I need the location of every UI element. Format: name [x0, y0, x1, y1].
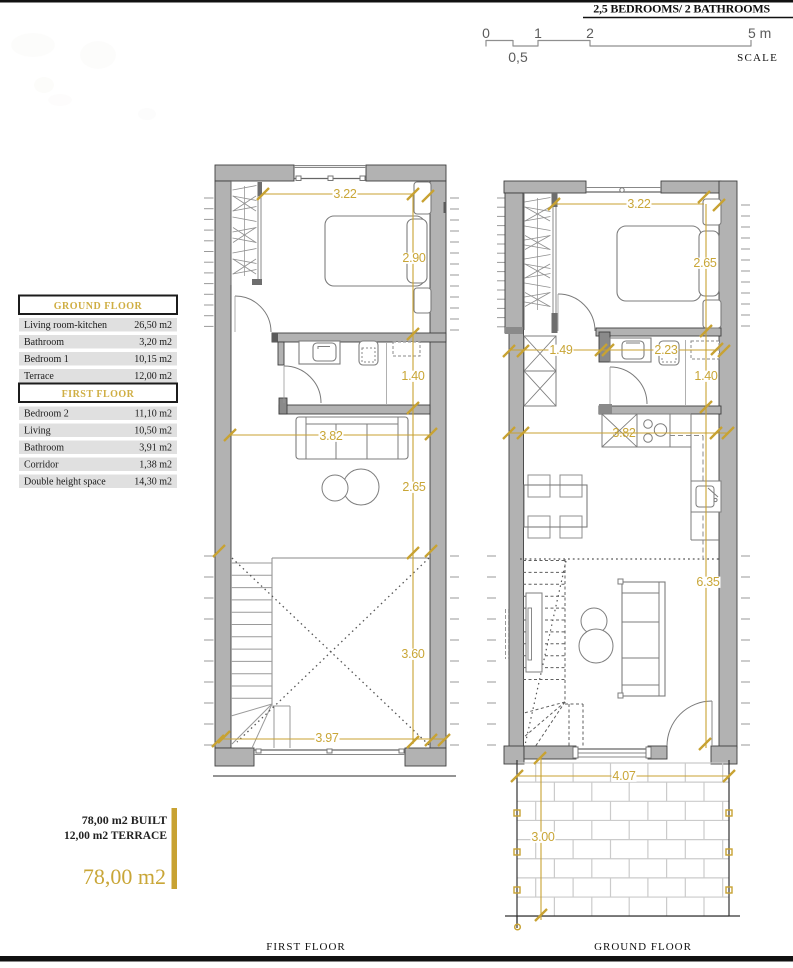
- svg-text:10,50 m2: 10,50 m2: [134, 426, 172, 437]
- svg-text:1.49: 1.49: [549, 343, 572, 357]
- svg-text:2.65: 2.65: [402, 480, 425, 494]
- svg-text:GROUND FLOOR: GROUND FLOOR: [54, 301, 143, 312]
- svg-text:1,38 m2: 1,38 m2: [139, 460, 172, 471]
- svg-text:2.65: 2.65: [693, 256, 716, 270]
- svg-text:3.60: 3.60: [401, 647, 424, 661]
- svg-text:0: 0: [482, 25, 490, 41]
- svg-text:Bathroom: Bathroom: [24, 443, 64, 454]
- svg-text:3.00: 3.00: [531, 830, 554, 844]
- svg-text:1.40: 1.40: [401, 369, 424, 383]
- svg-text:3.22: 3.22: [627, 197, 650, 211]
- svg-text:2.90: 2.90: [402, 251, 425, 265]
- svg-text:Bedroom 2: Bedroom 2: [24, 409, 69, 420]
- svg-text:GROUND FLOOR: GROUND FLOOR: [594, 941, 692, 953]
- svg-text:2: 2: [586, 25, 594, 41]
- svg-text:14,30 m2: 14,30 m2: [134, 477, 172, 488]
- svg-text:3,20 m2: 3,20 m2: [139, 337, 172, 348]
- svg-text:12,00 m2 TERRACE: 12,00 m2 TERRACE: [64, 830, 167, 842]
- svg-text:2,5 BEDROOMS/ 2 BATHROOMS: 2,5 BEDROOMS/ 2 BATHROOMS: [593, 2, 770, 16]
- svg-text:78,00 m2 BUILT: 78,00 m2 BUILT: [82, 813, 167, 827]
- svg-text:78,00 m2: 78,00 m2: [83, 864, 166, 889]
- svg-text:FIRST FLOOR: FIRST FLOOR: [62, 389, 135, 400]
- svg-text:FIRST FLOOR: FIRST FLOOR: [266, 941, 346, 953]
- svg-text:3.82: 3.82: [612, 426, 635, 440]
- svg-text:12,00 m2: 12,00 m2: [134, 371, 172, 382]
- svg-text:11,10 m2: 11,10 m2: [135, 409, 172, 420]
- svg-text:3.82: 3.82: [319, 429, 342, 443]
- svg-text:Bathroom: Bathroom: [24, 337, 64, 348]
- svg-text:1: 1: [534, 25, 542, 41]
- svg-text:2.23: 2.23: [654, 343, 677, 357]
- svg-text:5 m: 5 m: [748, 25, 771, 41]
- svg-text:3.22: 3.22: [333, 187, 356, 201]
- svg-text:Living: Living: [24, 426, 51, 437]
- svg-text:3.97: 3.97: [315, 731, 338, 745]
- svg-text:1.40: 1.40: [694, 369, 717, 383]
- svg-text:SCALE: SCALE: [737, 52, 778, 64]
- svg-text:Terrace: Terrace: [24, 371, 54, 382]
- svg-text:Double height space: Double height space: [24, 477, 106, 488]
- svg-text:Living room-kitchen: Living room-kitchen: [24, 320, 107, 331]
- svg-text:Bedroom 1: Bedroom 1: [24, 354, 69, 365]
- svg-text:6.35: 6.35: [696, 575, 719, 589]
- svg-text:26,50 m2: 26,50 m2: [134, 320, 172, 331]
- svg-text:0,5: 0,5: [508, 49, 528, 65]
- svg-text:Corridor: Corridor: [24, 460, 59, 471]
- svg-text:4.07: 4.07: [612, 769, 635, 783]
- svg-text:3,91 m2: 3,91 m2: [139, 443, 172, 454]
- svg-text:10,15 m2: 10,15 m2: [134, 354, 172, 365]
